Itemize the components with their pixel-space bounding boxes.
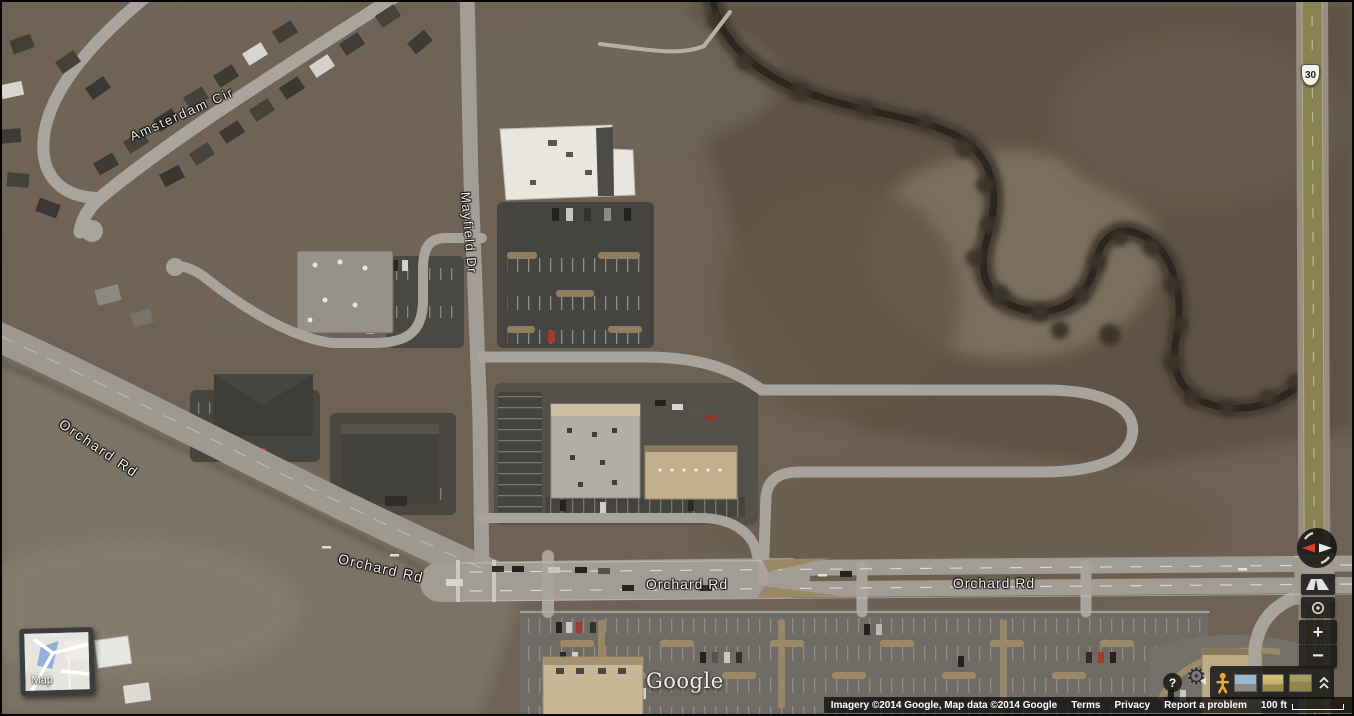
imagery-thumbnail-2[interactable] [1262, 674, 1285, 692]
footer-attribution-bar: Imagery ©2014 Google, Map data ©2014 Goo… [824, 697, 1352, 713]
imagery-carousel-bar [1210, 666, 1334, 699]
report-a-problem-link[interactable]: Report a problem [1164, 700, 1247, 711]
my-location-button[interactable] [1301, 597, 1335, 618]
zoom-in-button[interactable]: + [1299, 620, 1337, 644]
google-watermark-logo: Google [646, 669, 724, 693]
zoom-in-label: + [1313, 622, 1324, 643]
pegman-icon[interactable] [1216, 670, 1229, 696]
zoom-out-label: − [1312, 645, 1324, 668]
double-chevron-up-icon [1318, 676, 1330, 690]
terms-link[interactable]: Terms [1071, 700, 1100, 711]
attribution-text: Imagery ©2014 Google, Map data ©2014 Goo… [831, 700, 1057, 711]
scale-label: 100 ft [1261, 700, 1287, 711]
gear-icon: ⚙ [1186, 663, 1207, 689]
imagery-thumbnail-1[interactable] [1234, 674, 1257, 692]
tilt-view-button[interactable] [1301, 574, 1335, 595]
road-label-orchard-rd-center: Orchard Rd [646, 576, 728, 592]
collapse-chevron-button[interactable] [1318, 676, 1330, 690]
map-toggle-label: Map [31, 674, 53, 687]
zoom-out-button[interactable]: − [1299, 644, 1337, 668]
scale-control: 100 ft [1261, 700, 1344, 711]
compass-rotate-control[interactable] [1296, 527, 1338, 569]
carousel-collapse-arrow-icon[interactable] [1200, 677, 1206, 685]
imagery-thumbnail-3[interactable] [1289, 674, 1312, 692]
help-question-icon: ? [1169, 676, 1176, 690]
map-type-toggle[interactable]: Map [19, 627, 95, 696]
tilt-icon [1304, 577, 1332, 592]
route-30-shield-number: 30 [1305, 70, 1316, 81]
help-button[interactable]: ? [1163, 673, 1182, 692]
road-label-orchard-rd-east: Orchard Rd [953, 575, 1035, 591]
privacy-link[interactable]: Privacy [1114, 700, 1150, 711]
google-maps-screen: Amsterdam Cir Mayfield Dr Orchard Rd Orc… [0, 0, 1354, 716]
my-location-icon [1310, 600, 1326, 616]
scale-bar [1292, 704, 1344, 710]
